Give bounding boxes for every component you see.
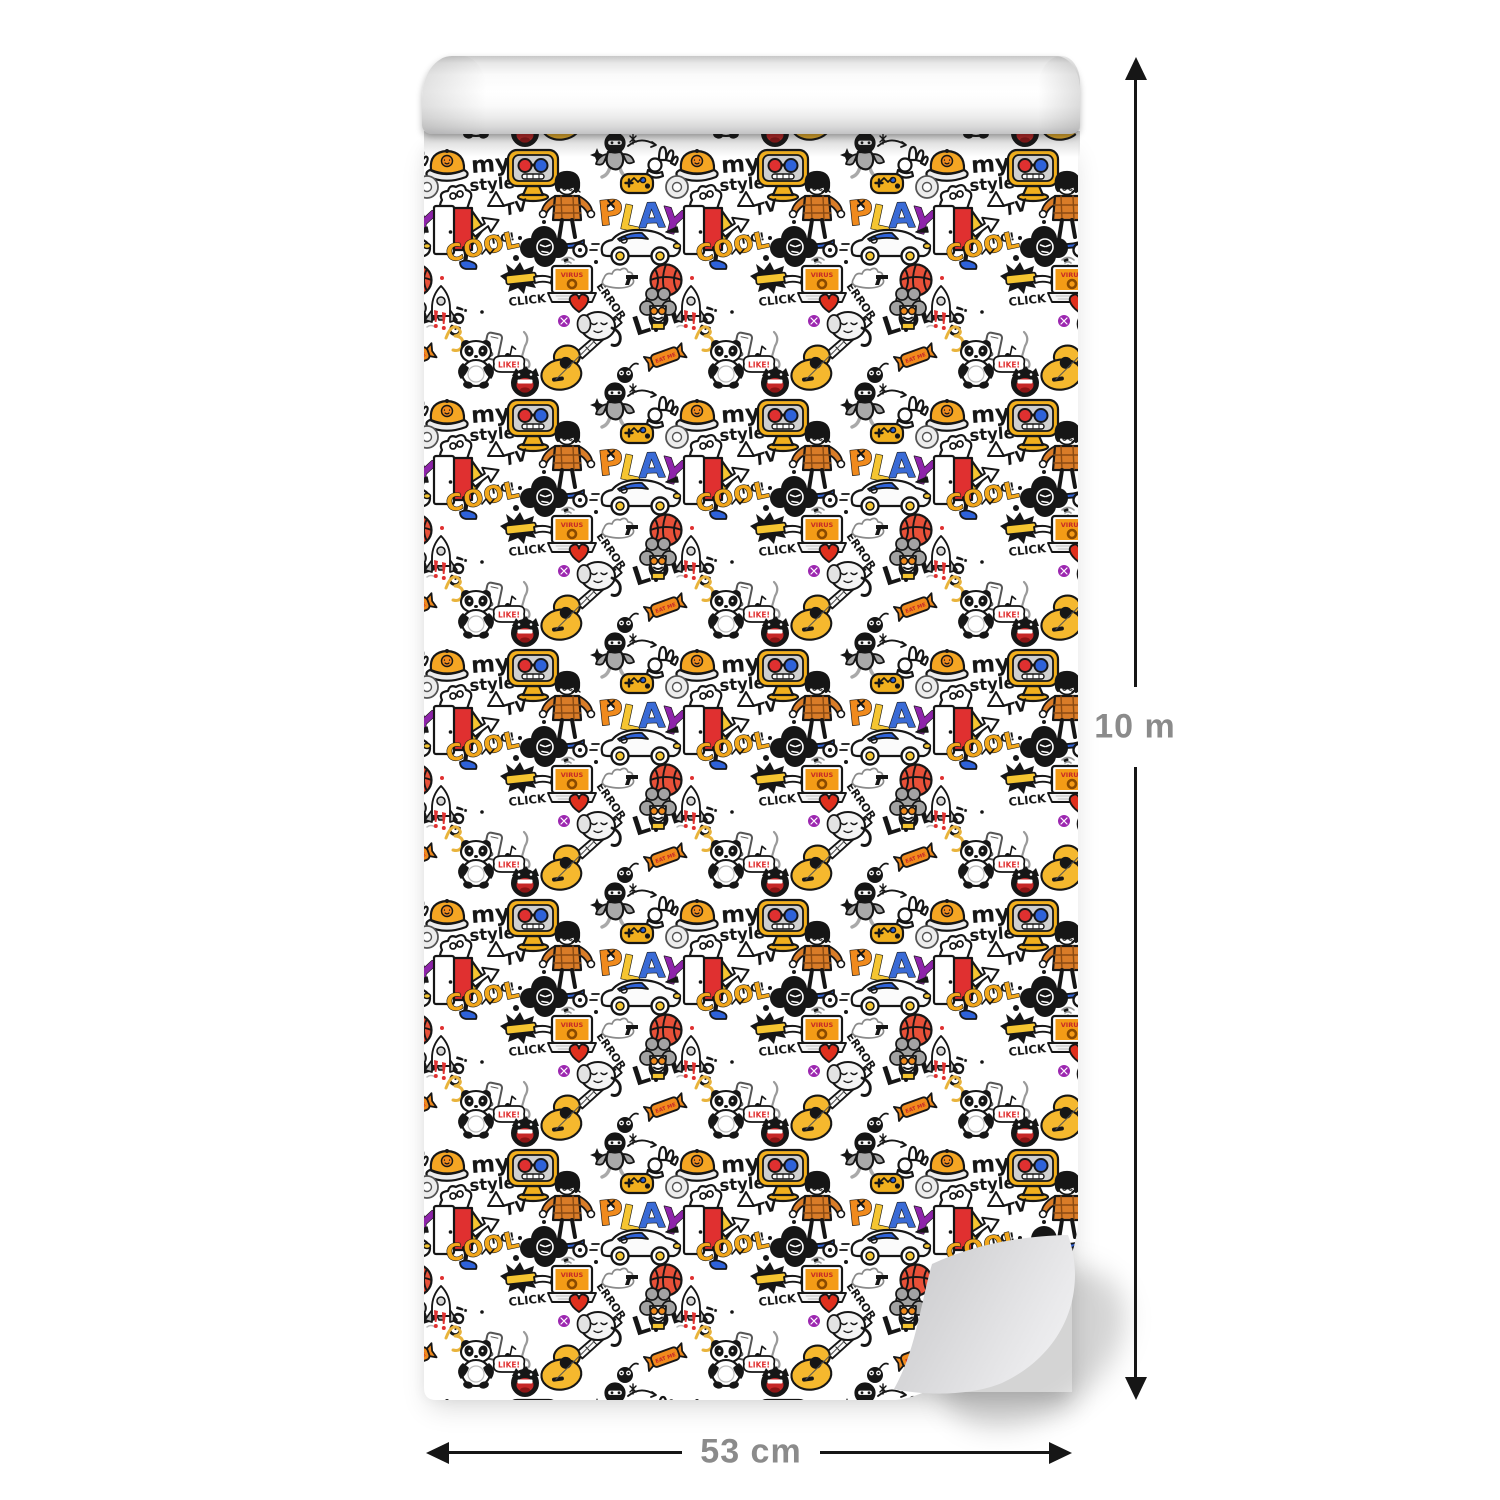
doodle-pattern: my style bbox=[424, 130, 1078, 1400]
length-dimension-label: 10 m bbox=[1094, 708, 1176, 747]
arrow-right-icon bbox=[1049, 1442, 1072, 1464]
arrow-left-icon bbox=[426, 1442, 449, 1464]
arrow-down-icon bbox=[1125, 1377, 1147, 1400]
roll-cast-shadow bbox=[424, 131, 1080, 157]
width-dimension-label: 53 cm bbox=[700, 1433, 801, 1472]
arrow-up-icon bbox=[1125, 57, 1147, 80]
roll-left-end-shading bbox=[422, 56, 486, 134]
wallpaper-roll-cylinder bbox=[422, 56, 1080, 134]
height-dimension-line-top bbox=[1134, 76, 1137, 687]
tile-grid bbox=[424, 130, 1078, 1400]
width-dimension-line-right bbox=[820, 1451, 1052, 1454]
width-dimension-line-left bbox=[442, 1451, 682, 1454]
wallpaper-product-image: my style bbox=[0, 0, 1500, 1500]
wallpaper-sheet: my style bbox=[424, 130, 1078, 1400]
height-dimension-line-bottom bbox=[1134, 767, 1137, 1377]
roll-right-end-shading bbox=[1038, 56, 1080, 134]
